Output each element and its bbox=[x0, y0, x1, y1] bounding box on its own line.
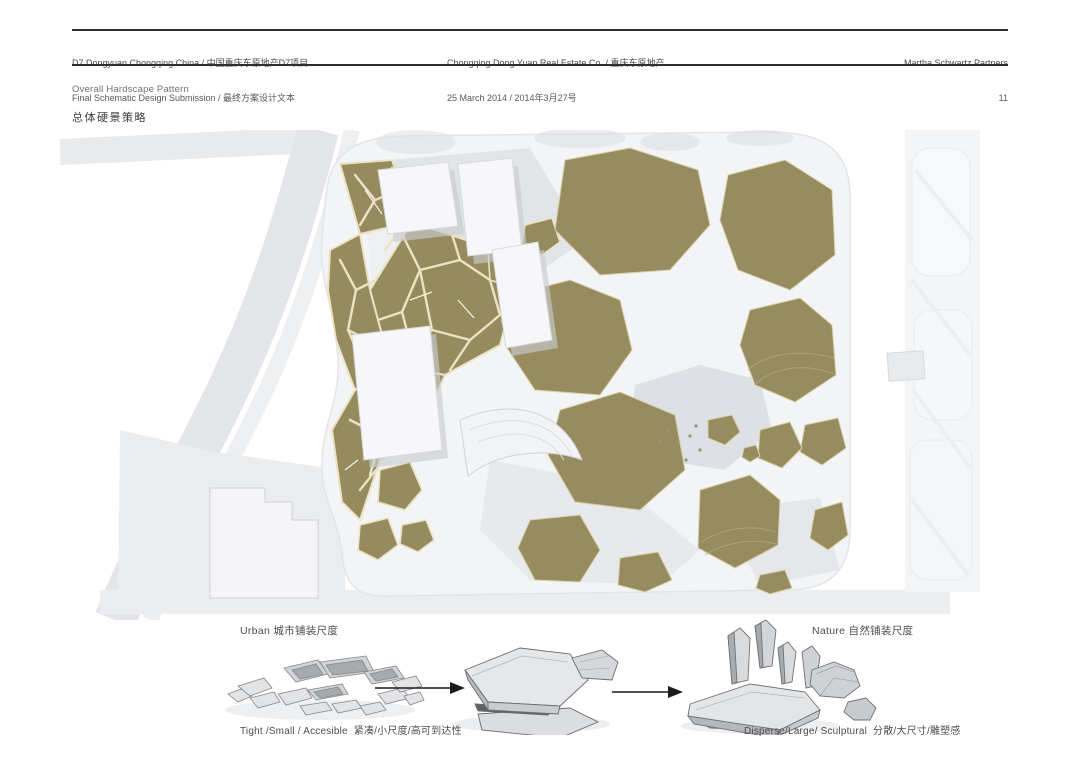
header-rule-top bbox=[72, 29, 1008, 31]
disperse-caption: Disperse/Large/ Sculptural 分散/大尺寸/雕塑感 bbox=[744, 722, 961, 737]
stone-transition-diagram bbox=[220, 618, 880, 735]
dispersed-sculptural-stones bbox=[680, 620, 876, 735]
page-number: 11 bbox=[904, 93, 1008, 105]
transition-arrow-icon bbox=[612, 686, 683, 698]
document-page: D7 Dongyuan Chongqing China / 中国重庆东原地产D7… bbox=[0, 0, 1080, 763]
site-plan-svg bbox=[60, 130, 980, 620]
tight-caption: Tight /Small / Accesible 紧凑/小尺度/高可到达性 bbox=[240, 722, 462, 737]
pavilion bbox=[887, 351, 925, 381]
header-rule-bottom bbox=[72, 64, 1008, 66]
large-slab-stones bbox=[454, 648, 618, 735]
section-title-chinese: 总体硬景策略 bbox=[72, 109, 147, 125]
stone-diagram-svg bbox=[220, 618, 880, 735]
header-firm-block: Martha Schwartz Partners 11 bbox=[904, 35, 1008, 127]
submission-date: 25 March 2014 / 2014年3月27号 bbox=[447, 93, 664, 105]
section-title-english: Overall Hardscape Pattern bbox=[72, 84, 189, 95]
site-plan bbox=[60, 130, 980, 620]
header-client-block: Chongqing Dong Yuan Real Estate Co. / 重庆… bbox=[447, 35, 664, 127]
